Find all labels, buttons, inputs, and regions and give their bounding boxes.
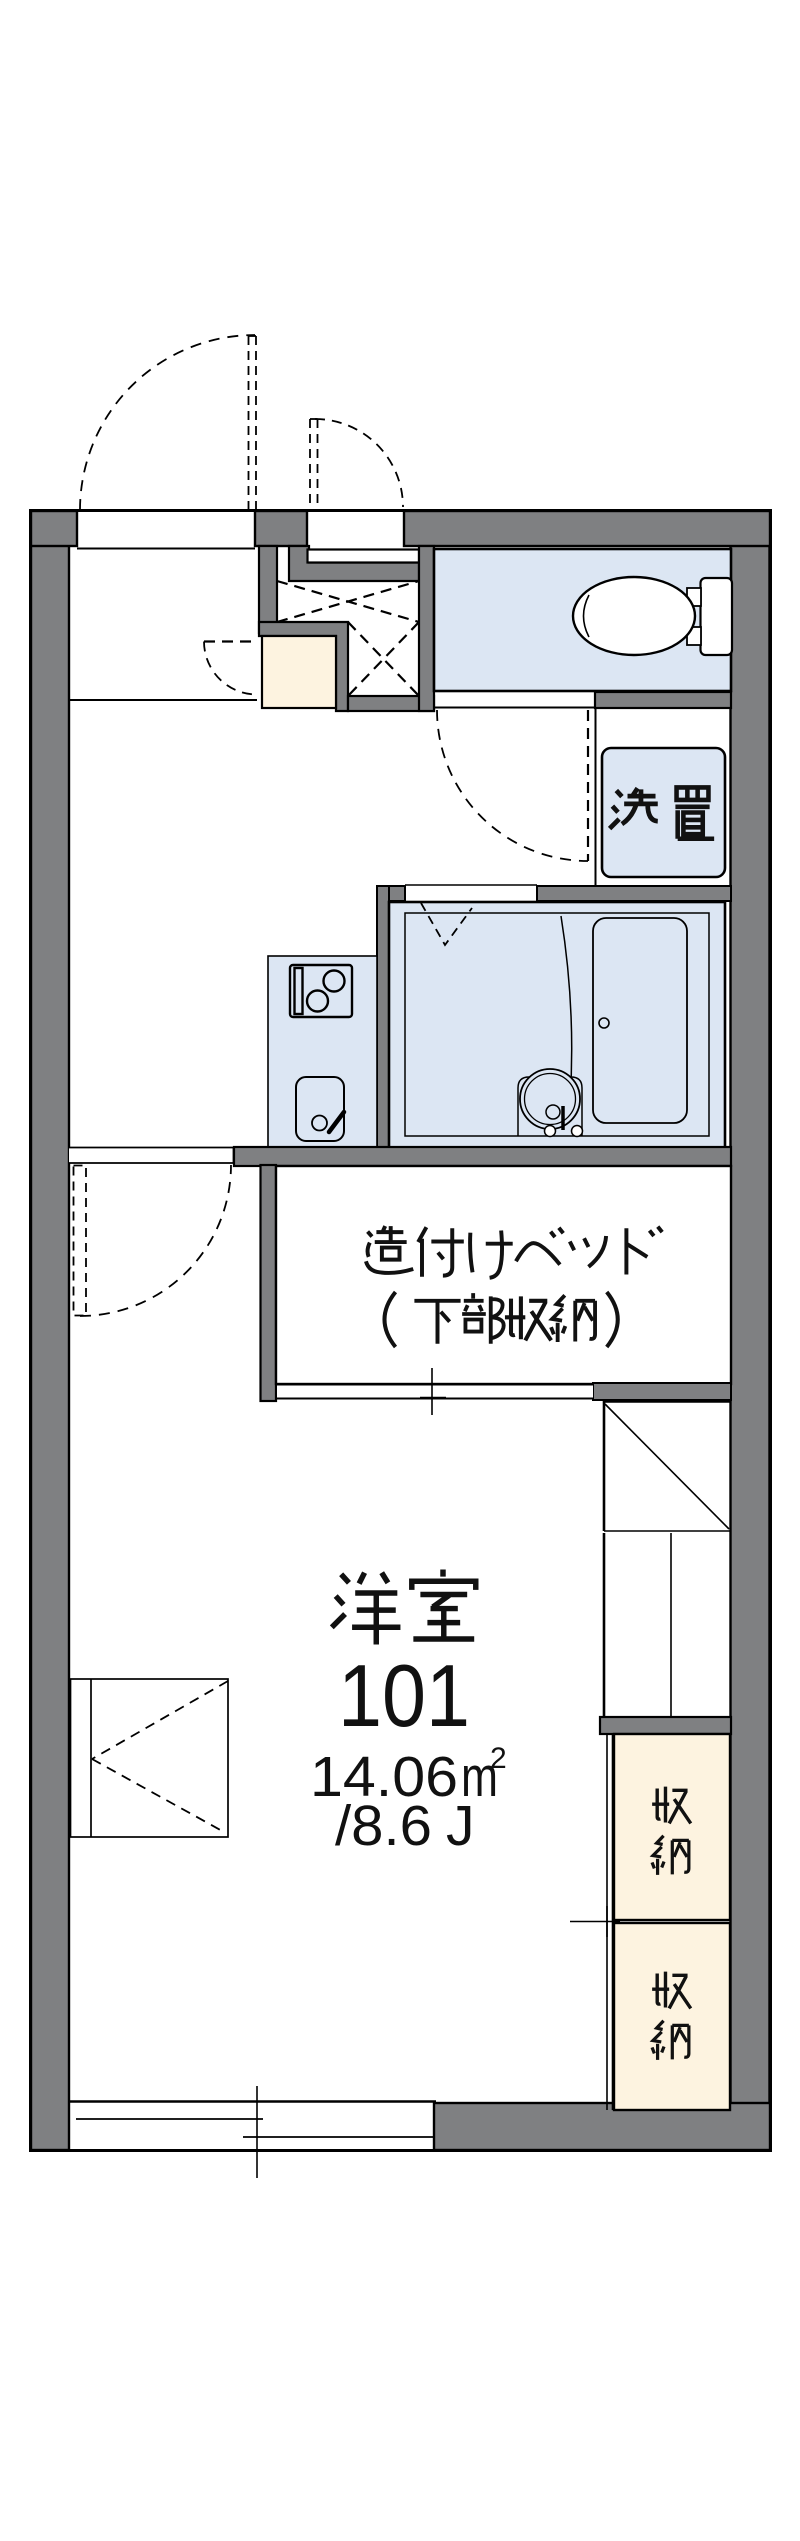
svg-text:2: 2 [490, 1742, 507, 1775]
svg-text:101: 101 [338, 1646, 470, 1745]
svg-text:J: J [446, 1794, 475, 1858]
svg-text:/8.6: /8.6 [335, 1794, 432, 1858]
